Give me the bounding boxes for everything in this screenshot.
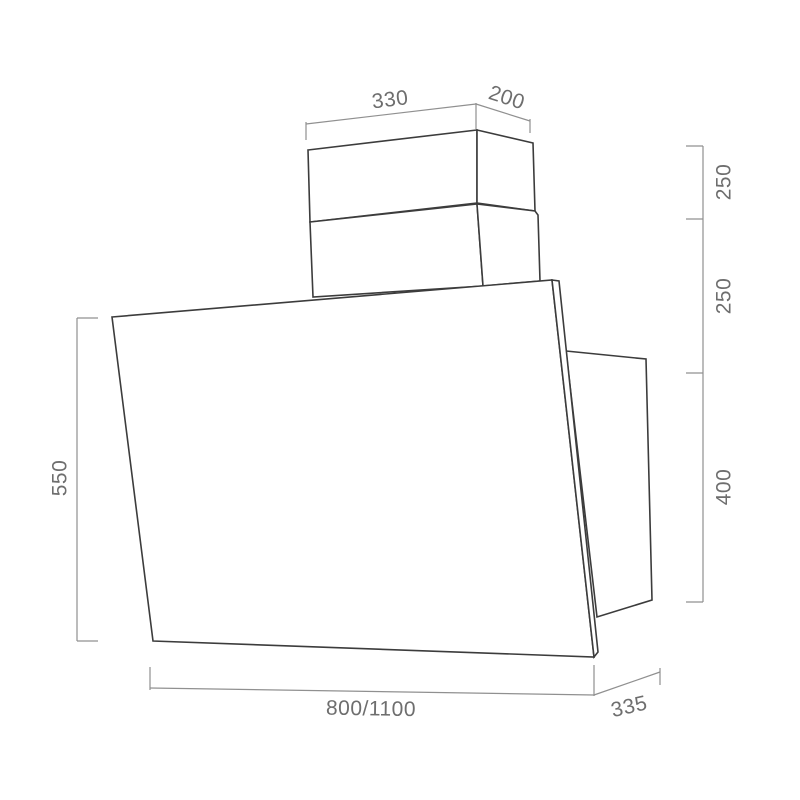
dim-label-body-depth: 335 [609,692,650,723]
front-panel [112,280,594,657]
dim-line-bottom-depth [594,672,660,695]
chimney-upper-side [477,130,535,211]
hood-technical-drawing: 330 200 550 250 250 400 800/1100 335 [0,0,800,800]
dim-label-panel-height: 550 [48,460,71,497]
dim-label-chimney-lower-height: 250 [712,278,735,315]
dim-label-chimney-upper-height: 250 [712,164,735,201]
dim-label-chimney-width: 330 [371,86,410,113]
dim-label-rear-housing-height: 400 [712,469,735,506]
dim-label-body-width: 800/1100 [326,697,416,722]
dim-line-bottom-width [150,688,594,695]
chimney-lower-side [477,204,540,286]
technical-drawing-page: 330 200 550 250 250 400 800/1100 335 [0,0,800,800]
hood-outline-group [112,130,652,657]
